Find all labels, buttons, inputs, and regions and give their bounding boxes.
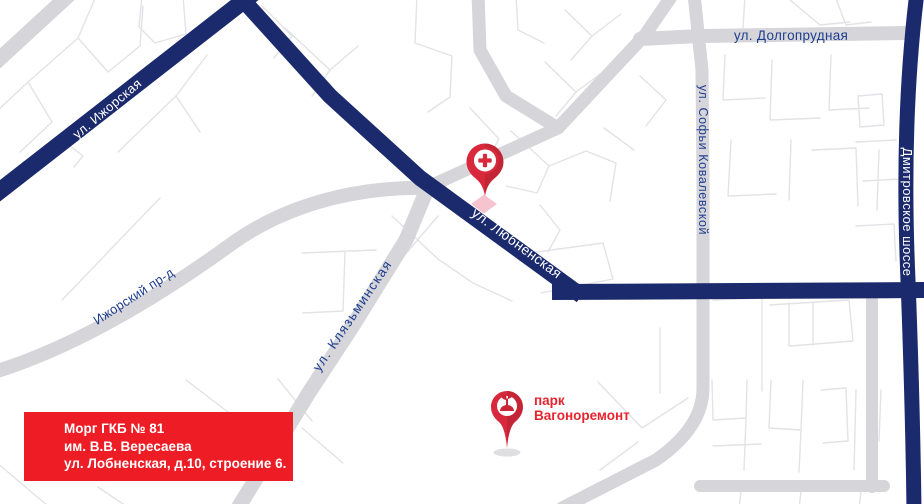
park-pin[interactable] [491,391,523,448]
map-canvas: ул. Долгопрудная ул. Софьи Ковалевской Д… [0,0,924,504]
info-box-line1: Морг ГКБ № 81 [64,420,287,438]
road-label-lyubnenskaya: ул. Любненская [469,204,565,281]
pin-shadow [494,449,521,457]
road-label-klyazminskaya: ул. Клязьминская [309,257,395,374]
road-label-sofyi-kovalevskoy: ул. Софьи Ковалевской [696,85,710,235]
park-label: парк Вагоноремонт [534,393,630,423]
road-label-dmitrovskoe-shosse: Дмитровское шоссе [900,148,915,277]
info-box-line3: ул. Лобненская, д.10, строение 6. [64,455,287,473]
road-label-izhorskaya: ул. Ижорская [70,75,145,141]
hospital-pin[interactable] [467,144,504,197]
park-label-line1: парк [534,393,565,408]
morgue-info-box: Морг ГКБ № 81 им. В.В. Вересаева ул. Лоб… [24,412,293,481]
park-label-line2: Вагоноремонт [534,408,630,423]
road-label-dolgoprudnaya: ул. Долгопрудная [734,28,848,43]
medical-cross-icon [473,148,498,173]
info-box-line2: им. В.В. Вересаева [64,438,287,456]
